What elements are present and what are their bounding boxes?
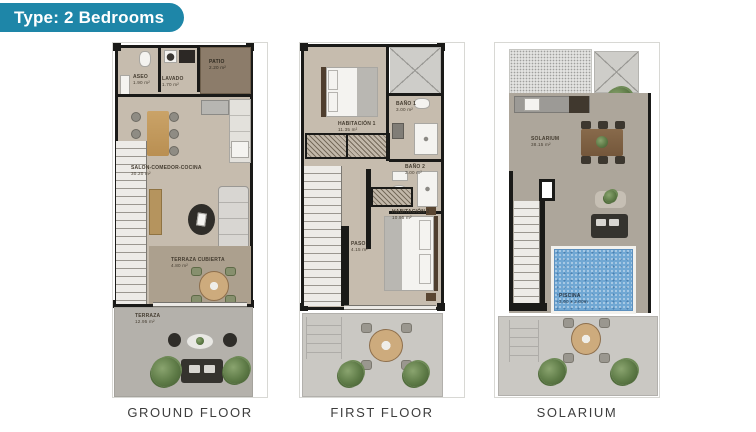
room-label-aseo: ASEO 1.90 m² xyxy=(133,74,150,86)
table-plant xyxy=(596,136,608,148)
terrace-chair xyxy=(599,318,610,328)
wall xyxy=(509,303,547,311)
dining-chair xyxy=(598,121,608,129)
room-label-terraza: TERRAZA 12.95 m² xyxy=(135,313,160,325)
plan-solarium: SOLARIUM 38.15 m² PISCINA 3.00 x 2.00m xyxy=(494,42,660,398)
table-plant xyxy=(196,337,204,345)
pouf xyxy=(168,333,181,347)
dryer-unit xyxy=(179,50,195,63)
room-label-paso: PASO 4.15 m² xyxy=(351,241,368,253)
room-label-habitacion2: HABITACIÓN 2 10.95 m² xyxy=(392,209,430,221)
sliding-glass-door xyxy=(344,305,436,310)
wall xyxy=(346,133,348,159)
wall-pillar xyxy=(113,43,121,51)
toilet xyxy=(414,98,430,109)
type-badge: Type: 2 Bedrooms xyxy=(0,3,184,32)
dining-chair xyxy=(581,156,591,164)
plant xyxy=(223,357,250,384)
outdoor-sink xyxy=(524,98,540,111)
terrace-chair xyxy=(563,353,574,363)
sofa-cushion xyxy=(596,219,606,226)
caption-solarium: SOLARIUM xyxy=(494,405,660,420)
pillow xyxy=(328,92,338,112)
sofa-cushion xyxy=(204,365,215,373)
dining-chair xyxy=(169,146,179,156)
sofa xyxy=(218,186,249,252)
wall xyxy=(158,48,161,92)
pillow xyxy=(419,220,431,250)
pool: PISCINA 3.00 x 2.00m xyxy=(551,246,636,314)
wall xyxy=(509,171,513,311)
kitchen-sink xyxy=(201,100,229,115)
stairs-outline xyxy=(509,320,539,362)
caption-first-floor: FIRST FLOOR xyxy=(299,405,465,420)
wall xyxy=(366,169,371,249)
dining-chair xyxy=(131,112,141,122)
room-label-salon: SALON-COMEDOR-COCINA 30.20 m² xyxy=(131,165,202,177)
wall xyxy=(118,94,251,97)
round-table xyxy=(369,329,403,362)
potted-plant xyxy=(604,190,617,203)
terrace-chair xyxy=(563,318,574,328)
terrace-chair xyxy=(401,323,412,333)
round-table xyxy=(199,271,229,301)
sofa-cushion xyxy=(609,219,619,226)
room-label-habitacion1: HABITACIÓN 1 11.35 m² xyxy=(338,121,376,133)
dining-chair xyxy=(598,156,608,164)
room-label-patio: PATIO 2.20 m² xyxy=(209,59,226,71)
wall xyxy=(386,47,389,161)
plant xyxy=(403,361,429,387)
staircase xyxy=(514,201,540,311)
dining-chair xyxy=(169,129,179,139)
washing-machine xyxy=(164,50,177,63)
plant xyxy=(338,361,364,387)
gravel-roof-area xyxy=(509,49,592,98)
shower-tray xyxy=(120,75,130,95)
outdoor-sofa xyxy=(591,214,628,238)
room-label-terraza-cubierta: TERRAZA CUBIERTA 4.80 m² xyxy=(171,257,225,269)
sideboard xyxy=(149,189,162,235)
roof-skylight xyxy=(388,47,441,95)
wall xyxy=(389,159,441,162)
plan-first-floor: HABITACIÓN 1 11.35 m² BAÑO 1 3.00 m² BAÑ… xyxy=(299,42,465,398)
terrace-chair xyxy=(599,353,610,363)
terrace-chair xyxy=(361,323,372,333)
oven xyxy=(231,141,249,158)
nightstand xyxy=(426,293,436,301)
shower xyxy=(417,171,438,207)
bathroom-sink xyxy=(392,123,404,139)
round-table xyxy=(571,323,601,355)
room-label-piscina: PISCINA 3.00 x 2.00m xyxy=(559,293,588,305)
dining-chair xyxy=(131,129,141,139)
room-label-lavado: LAVADO 1.70 m² xyxy=(162,76,184,88)
outdoor-sofa xyxy=(181,359,223,383)
wall-pillar xyxy=(437,303,445,311)
dining-chair xyxy=(581,121,591,129)
bed-blanket xyxy=(357,68,377,116)
bed-headboard xyxy=(434,216,438,291)
dining-chair xyxy=(615,156,625,164)
terrace-chair xyxy=(225,267,236,276)
dining-chair xyxy=(615,121,625,129)
stairs-outline xyxy=(306,317,342,359)
bed-blanket xyxy=(385,217,402,290)
dining-chair xyxy=(169,112,179,122)
coffee-table xyxy=(196,212,207,226)
dining-table xyxy=(147,111,169,156)
plant xyxy=(151,357,181,387)
type-badge-label: Type: 2 Bedrooms xyxy=(14,8,164,28)
toilet xyxy=(139,51,151,67)
wall xyxy=(341,226,349,306)
wall xyxy=(389,93,441,96)
pouf xyxy=(223,333,237,347)
staircase xyxy=(304,166,342,306)
pillow xyxy=(328,70,338,90)
wardrobe xyxy=(371,187,413,207)
pillow xyxy=(419,254,431,284)
wall-pillar xyxy=(300,43,308,51)
room-label-bano1: BAÑO 1 3.00 m² xyxy=(396,101,416,113)
room-label-bano2: BAÑO 2 3.00 m² xyxy=(405,164,425,176)
room-label-solarium: SOLARIUM 38.15 m² xyxy=(531,136,559,148)
shower xyxy=(414,123,438,155)
plant xyxy=(611,359,638,385)
sofa-cushion xyxy=(189,365,200,373)
plan-ground-floor: ASEO 1.90 m² LAVADO 1.70 m² PATIO 2.20 m… xyxy=(112,42,268,398)
floorplan-sheet: Type: 2 Bedrooms ASEO 1.90 m² LAVADO 1.7… xyxy=(0,0,756,432)
caption-ground-floor: GROUND FLOOR xyxy=(112,405,268,420)
plant xyxy=(539,359,566,385)
bbq-module xyxy=(569,96,589,113)
stair-opening xyxy=(539,179,555,201)
